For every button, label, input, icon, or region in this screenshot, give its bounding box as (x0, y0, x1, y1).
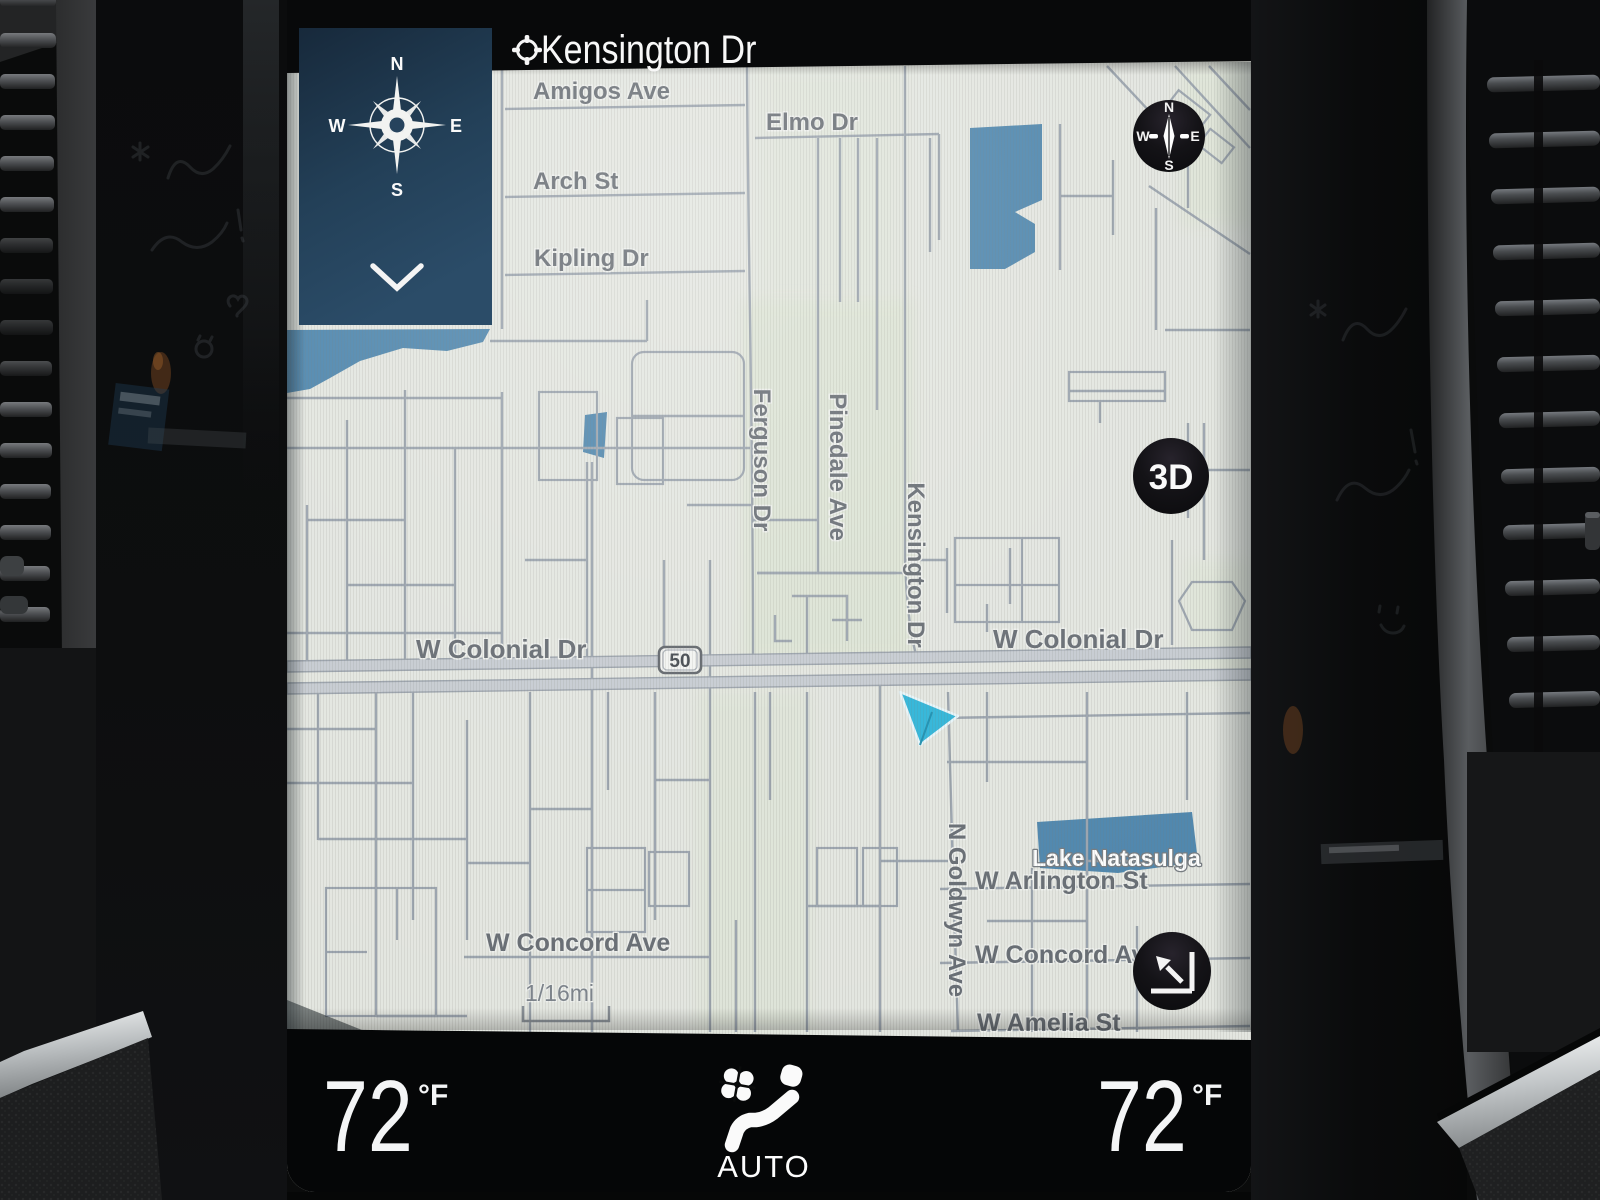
svg-text:W: W (1136, 128, 1150, 144)
svg-text:S: S (1164, 157, 1173, 173)
svg-text:72: 72 (323, 1060, 413, 1173)
svg-text:°F: °F (1192, 1079, 1222, 1112)
svg-text:AUTO: AUTO (717, 1149, 811, 1184)
svg-text:3D: 3D (1149, 458, 1194, 497)
svg-text:Kensington Dr: Kensington Dr (541, 26, 756, 71)
svg-text:E: E (450, 116, 462, 136)
svg-text:N: N (1164, 99, 1174, 115)
svg-text:°F: °F (418, 1079, 448, 1112)
svg-text:S: S (391, 180, 403, 200)
svg-text:72: 72 (1097, 1060, 1187, 1173)
svg-text:N: N (391, 54, 404, 74)
svg-text:E: E (1190, 128, 1199, 144)
svg-text:W: W (329, 116, 346, 136)
